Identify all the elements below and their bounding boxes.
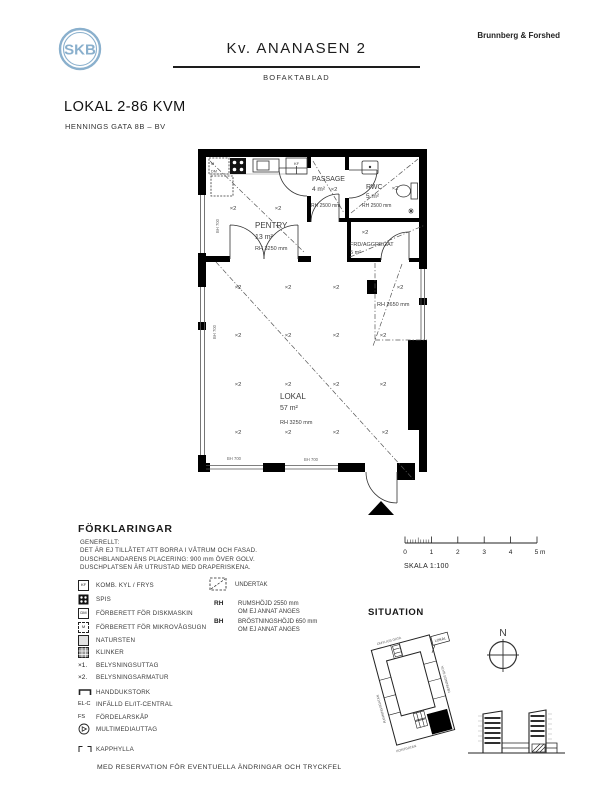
legend-item: HANDDUKSTORK: [78, 686, 150, 698]
left-tower: [483, 711, 502, 753]
plan-walls: [198, 149, 427, 480]
scale-bar: 0 1 2 3 4 5 m SKALA 1:100: [393, 530, 548, 575]
svg-text:×2: ×2: [333, 430, 340, 436]
building-elevation: [468, 710, 565, 753]
page-title: LOKAL 2-86 KVM: [64, 99, 186, 115]
room-label-passage: PASSAGE: [312, 176, 345, 183]
svg-text:×2: ×2: [285, 285, 292, 291]
bofaktablad-page: SKB Kv. ANANASEN 2 BOFAKTABLAD Brunnberg…: [0, 0, 612, 792]
legend-item: FS FÖRDELARSKÅP: [78, 711, 149, 723]
scale-ticks: [405, 537, 537, 544]
el-central-symbol: EL-C: [78, 701, 91, 707]
column: [367, 280, 377, 294]
svg-text:×2: ×2: [235, 285, 242, 291]
rh-definition: RH RUMSHÖJD 2550 mm OM EJ ANNAT ANGES: [209, 600, 300, 616]
general-line: DUSCHPLATSEN ÄR UTRUSTAD MED DRAPERISKEN…: [80, 564, 257, 572]
undertak-item: UNDERTAK: [209, 577, 267, 591]
scale-label: SKALA 1:100: [404, 563, 449, 570]
legend-item: KAPPHYLLA: [78, 743, 134, 755]
room-label-pentry: PENTRY: [255, 221, 288, 230]
svg-text:×2: ×2: [333, 382, 340, 388]
room-area-passage: 4 m²: [312, 186, 326, 193]
svg-text:1: 1: [430, 549, 434, 556]
entrance-arrow: [368, 501, 394, 515]
legend-item: M FÖRBERETT FÖR MIKROVÅGSUGN: [78, 621, 206, 633]
room-height-pentry: RH 3250 mm: [255, 246, 288, 252]
svg-text:×2: ×2: [333, 333, 340, 339]
room-area-lokal: 57 m²: [280, 405, 299, 412]
svg-text:×2: ×2: [362, 230, 369, 236]
north-label: N: [499, 627, 507, 639]
towel-dryer-icon: [78, 688, 96, 696]
site-plan: OMYLIUS GATA RANNINGSGATAN HENNINGS GATA…: [362, 624, 474, 755]
toilet-icon: [411, 183, 418, 199]
plan-labels: PENTRY 13 m² RH 3250 mm PASSAGE 4 m² RH …: [211, 161, 410, 462]
fridge-label: KF: [294, 161, 300, 166]
legend-title: FÖRKLARINGAR: [78, 523, 173, 535]
title-rule: [173, 66, 420, 68]
svg-text:×2: ×2: [235, 333, 242, 339]
svg-text:BH 700: BH 700: [227, 456, 242, 461]
scale-tick-labels: 0 1 2 3 4 5 m: [403, 549, 545, 556]
distribution-cabinet-symbol: FS: [78, 714, 85, 720]
room-area-pentry: 13 m²: [255, 234, 274, 241]
svg-text:×2: ×2: [285, 382, 292, 388]
svg-text:BH 700: BH 700: [304, 457, 319, 462]
ceiling-height-note: RH 2650 mm: [377, 302, 410, 308]
dishwasher-icon: DM: [78, 608, 89, 619]
entrance-door: [366, 472, 397, 503]
svg-text:×2: ×2: [380, 333, 387, 339]
north-compass: N: [487, 627, 519, 672]
svg-text:BH 700: BH 700: [215, 218, 220, 233]
svg-text:×2: ×2: [380, 382, 387, 388]
bh-definition: BH BRÖSTNINGSHÖJD 650 mm OM EJ ANNAT ANG…: [209, 618, 317, 634]
svg-text:0: 0: [403, 549, 407, 556]
architect-logotype: Brunnberg & Forshed: [420, 31, 560, 40]
svg-text:×2: ×2: [235, 382, 242, 388]
legend-item: KLINKER: [78, 646, 124, 658]
general-line: DET ÄR EJ TILLÅTET ATT BORRA I VÅTRUM OC…: [80, 547, 257, 555]
micro-label: M: [211, 162, 214, 166]
svg-text:×2: ×2: [285, 430, 292, 436]
suspended-ceiling-icon: [209, 577, 235, 591]
stove-icon: [230, 158, 246, 174]
floor-plan: PENTRY 13 m² RH 3250 mm PASSAGE 4 m² RH …: [190, 145, 435, 525]
coat-shelf-icon: [78, 745, 96, 753]
legend-item: MULTIMEDIAUTTAG: [78, 723, 157, 735]
room-height-passage: RH 2500 mm: [311, 203, 340, 209]
svg-text:3: 3: [482, 549, 486, 556]
svg-text:×2: ×2: [275, 206, 282, 212]
svg-text:4: 4: [509, 549, 513, 556]
room-height-lokal: RH 3250 mm: [280, 420, 313, 426]
svg-text:BH 700: BH 700: [212, 324, 217, 339]
svg-text:×2: ×2: [285, 333, 292, 339]
svg-text:5 m: 5 m: [535, 549, 546, 556]
room-height-rwc: RH 2500 mm: [362, 203, 391, 209]
microwave-icon: M: [78, 622, 89, 633]
room-label-frd: FRD/AGGREGAT: [350, 242, 394, 248]
svg-text:×2: ×2: [230, 206, 237, 212]
right-tower: [529, 710, 546, 753]
appliance-reservation: [211, 176, 233, 196]
rh-text: RUMSHÖJD 2550 mm: [238, 600, 300, 608]
address-line: HENNINGS GATA 8B – BV: [65, 122, 166, 131]
plan-windows: [201, 195, 425, 469]
svg-text:×2: ×2: [235, 430, 242, 436]
stove-icon: [78, 594, 96, 605]
dishwasher-label: DM: [211, 170, 217, 174]
legend-item: DM FÖRBERETT FÖR DISKMASKIN: [78, 607, 193, 619]
rh-note: OM EJ ANNAT ANGES: [238, 608, 300, 616]
legend-item: NATURSTEN: [78, 634, 135, 646]
general-line: GENERELLT:: [80, 539, 257, 547]
legend-item: KF KOMB. KYL / FRYS: [78, 579, 154, 591]
legend-item: SPIS: [78, 593, 111, 605]
room-label-rwc: RWC: [366, 184, 383, 191]
legend-item: ×2. BELYSNINGSARMATUR: [78, 671, 169, 683]
fridge-freezer-icon: KF: [78, 580, 89, 591]
light-outlet-symbol: ×1.: [78, 662, 87, 669]
bh-note: OM EJ ANNAT ANGES: [238, 626, 317, 634]
room-area-frd: 5 m²: [350, 250, 361, 256]
legend-item: ×1. BELYSNINGSUTTAG: [78, 659, 159, 671]
tile-icon: [78, 647, 96, 658]
natural-stone-icon: [78, 635, 89, 646]
document-type: BOFAKTABLAD: [173, 73, 420, 82]
svg-text:×2: ×2: [382, 430, 389, 436]
svg-text:×2: ×2: [331, 187, 338, 193]
disclaimer: MED RESERVATION FÖR EVENTUELLA ÄNDRINGAR…: [97, 764, 342, 771]
multimedia-icon: [78, 723, 96, 735]
situation-map: OMYLIUS GATA RANNINGSGATAN HENNINGS GATA…: [355, 600, 570, 770]
skb-logo: SKB: [57, 26, 103, 72]
project-title: Kv. ANANASEN 2: [173, 40, 420, 57]
room-area-rwc: 5 m²: [366, 193, 380, 200]
svg-text:×2: ×2: [333, 285, 340, 291]
light-fixture-symbol: ×2.: [78, 674, 87, 681]
street-label-bottom: KONTGATAN: [396, 744, 417, 753]
room-label-lokal: LOKAL: [280, 392, 306, 401]
kitchen-fixtures: [209, 158, 307, 196]
legend-item: EL-C INFÄLLD EL/IT-CENTRAL: [78, 698, 173, 710]
svg-text:2: 2: [456, 549, 460, 556]
legend-general-notes: GENERELLT: DET ÄR EJ TILLÅTET ATT BORRA …: [80, 539, 257, 573]
svg-text:×2: ×2: [397, 285, 404, 291]
svg-text:×2: ×2: [392, 186, 399, 192]
bh-text: BRÖSTNINGSHÖJD 650 mm: [238, 618, 317, 626]
floor-drain-icon: [408, 208, 414, 214]
general-line: DUSCHBLANDARENS PLACERING: 900 mm ÖVER G…: [80, 556, 257, 564]
logo-text: SKB: [64, 42, 96, 59]
